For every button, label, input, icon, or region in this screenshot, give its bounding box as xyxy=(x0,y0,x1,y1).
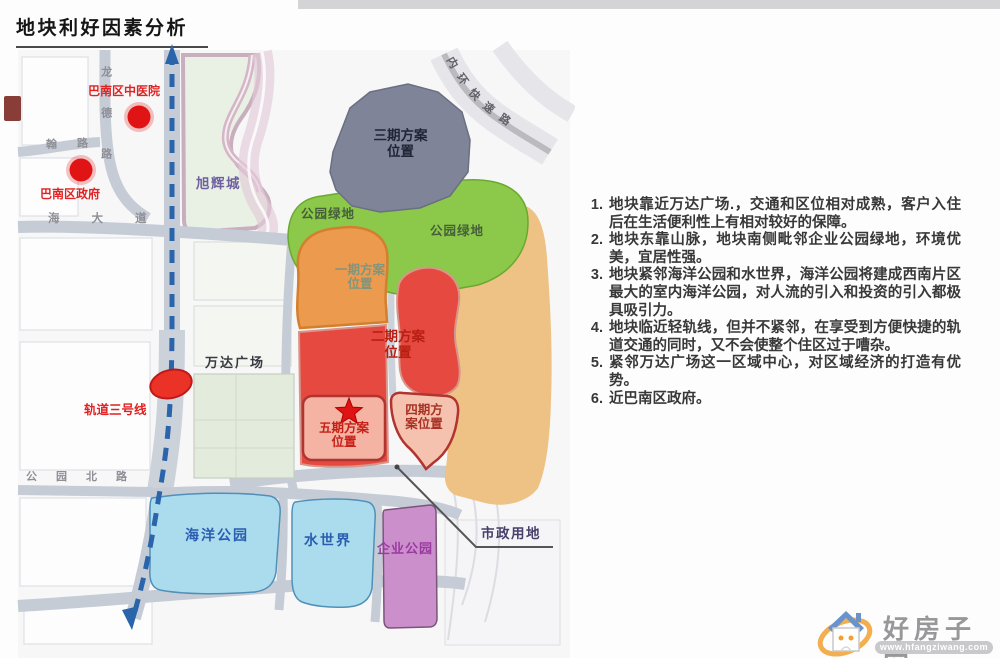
gongyuan-north-road-label: 公园北路 xyxy=(26,471,146,484)
phase5-label: 五期方案 位置 xyxy=(304,421,384,450)
list-item: 2. 地块东靠山脉，地块南侧毗邻企业公园绿地，环境优美，宜居性强。 xyxy=(583,232,965,267)
list-item: 3. 地块紧邻海洋公园和水世界，海洋公园将建成西南片区最大的室内海洋公园，对人流… xyxy=(583,267,965,320)
list-item: 6. 近巴南区政府。 xyxy=(583,391,965,409)
longde-road-label: 龙德路 xyxy=(99,66,112,189)
rail-line3-label: 轨道三号线 xyxy=(84,403,147,417)
phase3-label: 三期方案 位置 xyxy=(358,128,443,159)
wanda-plaza-area xyxy=(194,374,294,478)
list-item: 1. 地块靠近万达广场.，交通和区位相对成熟，客户入住后在生活便利性上有相对较好… xyxy=(583,197,965,232)
wanda-plaza-label: 万达广场 xyxy=(205,356,265,371)
han-road-label: 翰路 xyxy=(46,137,108,152)
watermark: 好房子网 www.hfangziwang.com xyxy=(815,601,1000,657)
enterprise-park-zone xyxy=(383,505,437,628)
analysis-list: 1. 地块靠近万达广场.，交通和区位相对成熟，客户入住后在生活便利性上有相对较好… xyxy=(583,197,965,408)
xuhui-city-label: 旭辉城 xyxy=(196,176,241,192)
ocean-park-zone xyxy=(150,493,280,594)
list-item: 5. 紧邻万达广场这一区域中心，对区域经济的打造有优势。 xyxy=(583,355,965,390)
site-plan-map: 内环快速路 xyxy=(0,0,575,658)
government-label: 巴南区政府 xyxy=(40,188,100,202)
slide-page: 地块利好因素分析 xyxy=(0,0,1000,658)
enterprise-park-label: 企业公园 xyxy=(377,542,433,557)
municipal-land-label: 市政用地 xyxy=(481,526,541,542)
hospital-marker xyxy=(124,102,154,132)
phase4-label: 四期方 案位置 xyxy=(392,403,456,432)
government-marker xyxy=(66,155,96,185)
park-green-left-label: 公园绿地 xyxy=(301,207,355,221)
park-green-right-label: 公园绿地 xyxy=(430,224,484,238)
dark-building-block xyxy=(4,96,21,121)
water-world-zone xyxy=(292,499,375,607)
list-item: 4. 地块临近轻轨线，但并不紧邻，在享受到方便快捷的轨道交通的同时，又不会使整个… xyxy=(583,320,965,355)
hfangziwang-logo-icon xyxy=(817,605,881,658)
xuhui-city-area xyxy=(183,52,269,236)
ocean-park-label: 海洋公园 xyxy=(167,527,267,543)
water-world-label: 水世界 xyxy=(288,532,368,548)
phase2-label: 二期方案 位置 xyxy=(362,329,434,360)
haida-avenue-label: 海大道 xyxy=(48,213,179,226)
watermark-site-url: www.hfangziwang.com xyxy=(875,641,993,654)
phase1-label: 一期方案 位置 xyxy=(330,263,390,292)
